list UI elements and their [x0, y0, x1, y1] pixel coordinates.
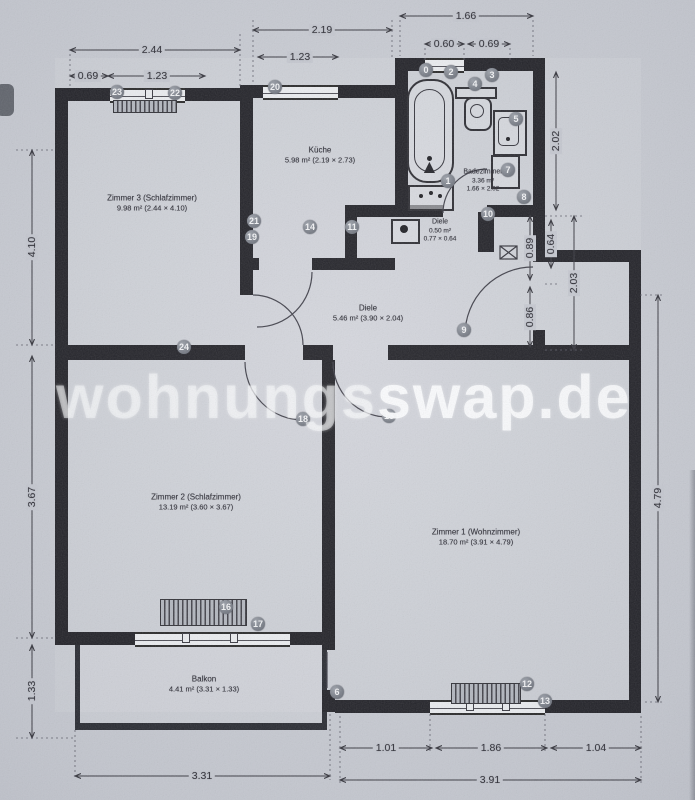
- floorplan-page: ▲: [0, 0, 695, 800]
- room-label-zimmer2: Zimmer 2 (Schlafzimmer) 13.19 m² (3.60 ×…: [151, 492, 241, 511]
- room-area: 0.50 m²: [424, 227, 457, 235]
- dim-z3-left: 0.69: [75, 70, 101, 82]
- room-area: 4.41 m² (3.31 × 1.33): [169, 684, 239, 693]
- room-area: 13.19 m² (3.60 × 3.67): [151, 502, 241, 511]
- room-dims: 1.66 × 2.02: [463, 185, 502, 193]
- dim-bad-total: 1.66: [453, 10, 479, 22]
- marker: 4: [468, 77, 482, 91]
- marker: 19: [245, 230, 259, 244]
- dim-z3-window: 1.23: [144, 70, 170, 82]
- dim-zimmer3-height: 4.10: [26, 234, 38, 260]
- room-area: 9.98 m² (2.44 × 4.10): [107, 203, 197, 212]
- watermark-bold: swap.de: [377, 363, 632, 431]
- marker: 1: [441, 174, 455, 188]
- dim-zimmer3-total: 2.44: [139, 44, 165, 56]
- room-name: Zimmer 1 (Wohnzimmer): [432, 527, 520, 537]
- room-name: Badezimmer: [463, 169, 502, 178]
- marker: 22: [168, 86, 182, 100]
- marker: 16: [219, 600, 233, 614]
- room-name: Küche: [285, 145, 355, 155]
- marker: 9: [457, 323, 471, 337]
- dim-kueche-total: 2.19: [309, 24, 335, 36]
- marker: 2: [444, 65, 458, 79]
- marker: 13: [538, 694, 552, 708]
- marker: 23: [110, 85, 124, 99]
- dim-niche-upper: 0.89: [524, 235, 536, 261]
- marker: 5: [509, 112, 523, 126]
- dim-balkon-height: 1.33: [26, 678, 38, 704]
- dim-bad-window: 0.60: [431, 38, 457, 50]
- dim-bad-right: 0.69: [476, 38, 502, 50]
- dim-bad-height: 2.02: [550, 128, 562, 154]
- marker: 24: [177, 340, 191, 354]
- dim-zimmer1-height: 4.79: [652, 485, 664, 511]
- watermark-light: wohnungs: [56, 363, 377, 431]
- marker: 10: [481, 207, 495, 221]
- room-name: Zimmer 3 (Schlafzimmer): [107, 193, 197, 203]
- dim-zimmer1-width: 3.91: [477, 774, 503, 786]
- marker: 0: [419, 63, 433, 77]
- dim-niche-inner: 0.64: [545, 231, 557, 257]
- room-area: 18.70 m² (3.91 × 4.79): [432, 537, 520, 546]
- room-area: 5.46 m² (3.90 × 2.04): [333, 313, 403, 322]
- room-name: Balkon: [169, 674, 239, 684]
- dim-entry: 0.86: [524, 304, 536, 330]
- dim-z1-left: 1.01: [373, 742, 399, 754]
- marker: 20: [268, 80, 282, 94]
- room-area: 3.36 m²: [463, 177, 502, 185]
- room-name: Diele: [424, 219, 457, 228]
- room-label-diele-klein: Diele 0.50 m² 0.77 × 0.64: [424, 219, 457, 244]
- marker: 14: [303, 220, 317, 234]
- marker: 21: [247, 214, 261, 228]
- room-name: Diele: [333, 303, 403, 313]
- marker: 11: [345, 220, 359, 234]
- marker: 7: [501, 163, 515, 177]
- dim-zimmer2-height: 3.67: [26, 484, 38, 510]
- marker: 17: [251, 617, 265, 631]
- room-area: 5.98 m² (2.19 × 2.73): [285, 155, 355, 164]
- dim-kueche-window: 1.23: [287, 51, 313, 63]
- dim-balkon-width: 3.31: [189, 770, 215, 782]
- shaft-symbol: [500, 246, 517, 259]
- dim-z1-right: 1.04: [583, 742, 609, 754]
- room-name: Zimmer 2 (Schlafzimmer): [151, 492, 241, 502]
- marker: 6: [330, 685, 344, 699]
- dim-z1-window: 1.86: [478, 742, 504, 754]
- dim-diele-height: 2.03: [568, 270, 580, 296]
- marker: 3: [485, 68, 499, 82]
- room-label-kueche: Küche 5.98 m² (2.19 × 2.73): [285, 145, 355, 164]
- marker: 12: [520, 677, 534, 691]
- marker: 8: [517, 190, 531, 204]
- room-label-badezimmer: Badezimmer 3.36 m² 1.66 × 2.02: [463, 169, 502, 194]
- room-label-balkon: Balkon 4.41 m² (3.31 × 1.33): [169, 674, 239, 693]
- room-dims: 0.77 × 0.64: [424, 235, 457, 243]
- room-label-zimmer1: Zimmer 1 (Wohnzimmer) 18.70 m² (3.91 × 4…: [432, 527, 520, 546]
- room-label-diele: Diele 5.46 m² (3.90 × 2.04): [333, 303, 403, 322]
- room-label-zimmer3: Zimmer 3 (Schlafzimmer) 9.98 m² (2.44 × …: [107, 193, 197, 212]
- watermark: wohnungsswap.de: [56, 362, 656, 432]
